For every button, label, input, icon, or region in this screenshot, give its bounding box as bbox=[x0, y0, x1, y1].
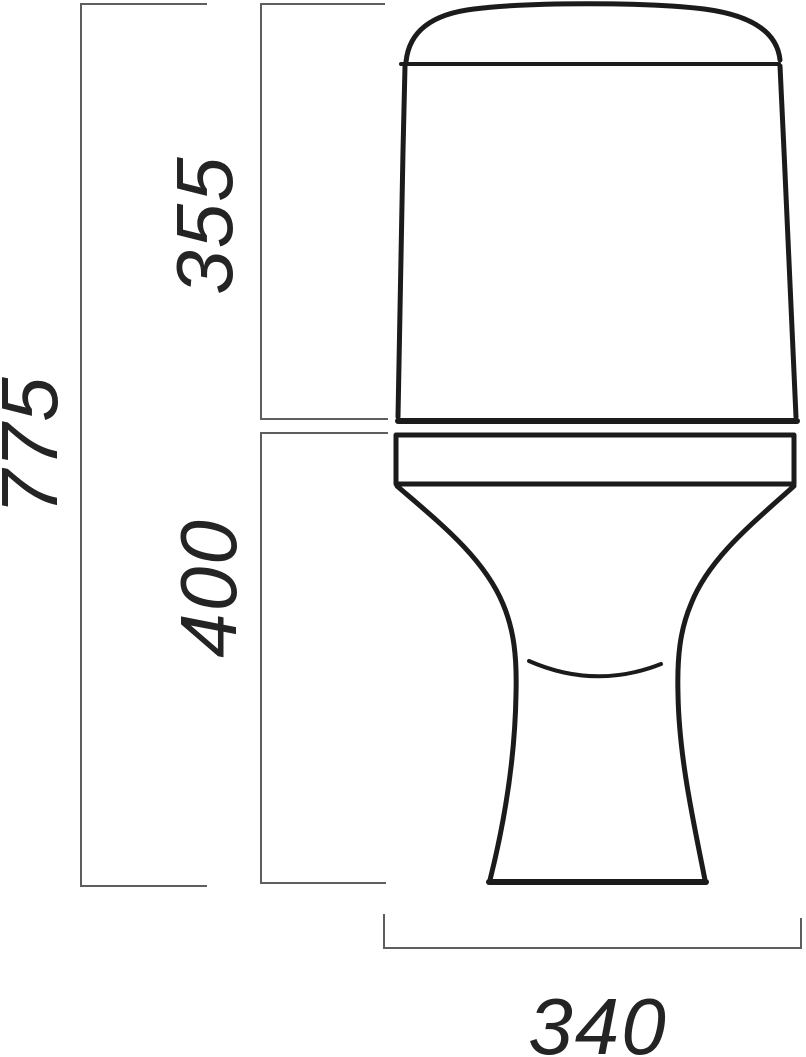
dimension-label-base-width: 340 bbox=[528, 987, 667, 1057]
bowl-rim bbox=[396, 435, 794, 484]
cistern-lid-outline bbox=[406, 4, 780, 62]
dimension-extent-base-width bbox=[384, 914, 801, 948]
toilet-outline bbox=[396, 4, 797, 882]
bowl-water-line bbox=[529, 661, 661, 676]
cistern-right-side bbox=[780, 66, 796, 417]
bowl-right-contour bbox=[678, 486, 794, 880]
toilet-dimension-diagram bbox=[0, 0, 806, 1057]
dimension-label-bowl-height: 400 bbox=[169, 518, 249, 657]
dimension-label-tank-height: 355 bbox=[165, 155, 245, 294]
dimension-label-total-height: 775 bbox=[0, 375, 70, 514]
technical-drawing-canvas: 775 355 400 340 bbox=[0, 0, 806, 1057]
cistern-left-side bbox=[398, 66, 405, 417]
dimension-extent-bowl-height bbox=[261, 433, 388, 883]
dimension-extent-total-height bbox=[81, 4, 207, 886]
bowl-left-contour bbox=[397, 486, 516, 880]
dimension-extent-tank-height bbox=[261, 4, 388, 419]
